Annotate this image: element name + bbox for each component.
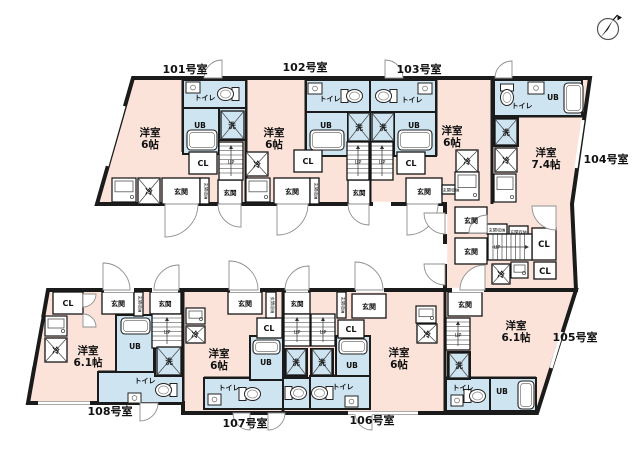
fridge-label: 冷 xyxy=(253,159,261,169)
entrance-label: 玄関 xyxy=(291,299,305,308)
door-arc xyxy=(424,213,445,234)
laundry-label: 洗 xyxy=(379,122,387,132)
door-arc xyxy=(495,61,512,78)
door-arc xyxy=(355,262,383,290)
bathtub-icon xyxy=(310,130,344,150)
closet-label: CL xyxy=(63,299,74,308)
room-size-label: 6.1帖 xyxy=(501,331,531,344)
room-label: 洋室 xyxy=(140,126,161,139)
floor-plan-svg: 101号室102号室103号室104号室105号室106号室107号室108号室… xyxy=(0,0,640,470)
entrance-label: 玄関 xyxy=(464,247,478,256)
unit-bath-label: UB xyxy=(129,342,141,351)
up-label: UP xyxy=(228,160,235,166)
room-label: 洋室 xyxy=(442,124,463,137)
laundry-label: 洗 xyxy=(228,120,236,130)
toilet-label: トイレ xyxy=(402,96,423,104)
unit-bath-label: UB xyxy=(194,121,206,130)
up-label: UP xyxy=(494,245,501,251)
room-label: 洋室 xyxy=(78,344,99,357)
entrance-label: 玄関 xyxy=(238,299,252,308)
vanity-icon xyxy=(186,82,200,93)
vanity-icon xyxy=(208,394,221,405)
door-arc xyxy=(268,413,285,430)
toilet-icon xyxy=(218,88,234,101)
toilet-label: トイレ xyxy=(135,377,156,385)
compass-north-icon xyxy=(613,15,618,20)
toilet-icon xyxy=(376,90,392,103)
fridge-label: 冷 xyxy=(463,156,471,166)
unit-number-label: 103号室 xyxy=(397,62,442,76)
closet-label: CL xyxy=(538,240,550,250)
laundry-label: 洗 xyxy=(292,357,300,367)
door-arc xyxy=(154,265,179,290)
closet-label: CL xyxy=(406,159,417,168)
kitchen-sink-icon xyxy=(455,172,479,200)
toilet-label: トイレ xyxy=(195,94,216,102)
room-label: 洋室 xyxy=(389,346,410,359)
closet-label: CL xyxy=(303,157,314,166)
fridge-label: 冷 xyxy=(145,186,153,196)
floor-plan: 101号室102号室103号室104号室105号室106号室107号室108号室… xyxy=(0,0,640,470)
room-size-label: 6.1帖 xyxy=(73,356,103,369)
entrance-storage-label: 玄関収納 xyxy=(510,229,527,236)
entrance-label: 玄関 xyxy=(174,187,188,196)
vanity-icon xyxy=(308,83,322,94)
toilet-icon xyxy=(245,388,261,401)
fridge-label: 冷 xyxy=(502,155,510,165)
up-label: UP xyxy=(455,333,462,339)
up-label: UP xyxy=(164,330,171,336)
door-arc xyxy=(103,263,130,290)
entrance-label: 玄関 xyxy=(353,188,367,197)
entrance-storage-label: 玄関収納 xyxy=(489,227,506,234)
up-label: UP xyxy=(294,330,301,336)
entrance-storage-label: 玄関収納 xyxy=(137,296,144,313)
up-label: UP xyxy=(320,330,327,336)
entrance-label: 玄関 xyxy=(285,187,299,196)
up-label: UP xyxy=(355,160,362,166)
unit-bath-label: UB xyxy=(547,93,559,102)
laundry-label: 洗 xyxy=(318,357,326,367)
door-arc xyxy=(277,204,308,235)
door-arc xyxy=(285,266,309,290)
unit-number-label: 104号室 xyxy=(584,152,629,166)
vanity-icon xyxy=(451,395,463,406)
toilet-icon xyxy=(347,90,363,103)
laundry-label: 洗 xyxy=(355,122,363,132)
toilet-icon xyxy=(312,387,328,400)
closet-label: CL xyxy=(346,325,357,334)
unit-bath-label: UB xyxy=(496,387,508,396)
door-arc xyxy=(140,403,158,421)
unit-number-label: 101号室 xyxy=(163,62,208,76)
toilet-icon xyxy=(156,384,172,397)
fridge-label: 冷 xyxy=(52,345,60,355)
fridge-label: 冷 xyxy=(191,329,199,339)
room-label: 洋室 xyxy=(264,126,285,139)
closet-label: CL xyxy=(264,324,275,333)
laundry-label: 洗 xyxy=(502,127,510,137)
room-size-label: 6帖 xyxy=(210,359,228,372)
room-label: 洋室 xyxy=(536,146,557,159)
room-size-label: 6帖 xyxy=(390,358,408,371)
entrance-label: 玄関 xyxy=(417,187,431,196)
vanity-icon xyxy=(128,393,141,403)
entrance-label: 玄関 xyxy=(458,300,472,309)
entrance-storage-label: 玄関収納 xyxy=(313,183,320,200)
entrance-label: 玄関 xyxy=(159,299,173,308)
toilet-label: トイレ xyxy=(219,384,240,392)
entrance-storage-label: 玄関収納 xyxy=(443,187,460,194)
toilet-label: トイレ xyxy=(320,95,341,103)
room-size-label: 6帖 xyxy=(265,138,283,151)
entrance-label: 玄関 xyxy=(464,216,478,225)
toilet-label: トイレ xyxy=(453,384,474,392)
unit-number-label: 107号室 xyxy=(223,416,268,430)
up-label: UP xyxy=(379,160,386,166)
bathtub-icon xyxy=(187,130,217,150)
vanity-icon xyxy=(528,82,544,94)
fridge-label: 冷 xyxy=(423,329,431,339)
bathtub-icon xyxy=(398,130,432,150)
entrance-label: 玄関 xyxy=(111,299,125,308)
laundry-label: 洗 xyxy=(455,360,463,370)
vanity-icon xyxy=(345,396,358,407)
entrance-label: 玄関 xyxy=(362,302,376,311)
kitchen-sink-icon xyxy=(511,262,528,278)
unit-bath-label: UB xyxy=(346,361,358,370)
room-label: 洋室 xyxy=(506,319,527,332)
door-arc xyxy=(229,261,258,290)
entrance-label: 玄関 xyxy=(224,188,238,197)
vanity-icon xyxy=(418,83,432,94)
unit-number-label: 102号室 xyxy=(283,60,328,74)
toilet-label: トイレ xyxy=(333,383,354,391)
unit-bath-label: UB xyxy=(260,358,272,367)
unit-bath-label: UB xyxy=(320,121,332,130)
room-label: 洋室 xyxy=(209,347,230,360)
door-arc xyxy=(424,264,445,285)
fridge-label: 冷 xyxy=(497,269,505,279)
room-size-label: 7.4帖 xyxy=(531,158,561,171)
laundry-label: 洗 xyxy=(165,356,173,366)
room-size-label: 6帖 xyxy=(443,136,461,149)
unit-number-label: 106号室 xyxy=(350,413,395,427)
closet-label: CL xyxy=(198,159,209,168)
room-size-label: 6帖 xyxy=(141,138,159,151)
unit-bath-label: UB xyxy=(408,121,420,130)
unit-number-label: 108号室 xyxy=(88,404,133,418)
entrance-storage-label: 玄関収納 xyxy=(269,297,276,314)
door-arc xyxy=(165,204,198,237)
door-arc xyxy=(218,204,241,227)
compass-north-icon xyxy=(618,15,623,21)
toilet-icon xyxy=(291,387,307,400)
toilet-label: トイレ xyxy=(512,102,533,110)
entrance-storage-label: 玄関収納 xyxy=(340,297,347,314)
closet-label: CL xyxy=(539,267,551,277)
bathtub-icon xyxy=(253,340,280,354)
unit-number-label: 105号室 xyxy=(553,330,598,344)
entrance-storage-label: 玄関収納 xyxy=(203,183,210,200)
door-arc xyxy=(348,204,369,225)
